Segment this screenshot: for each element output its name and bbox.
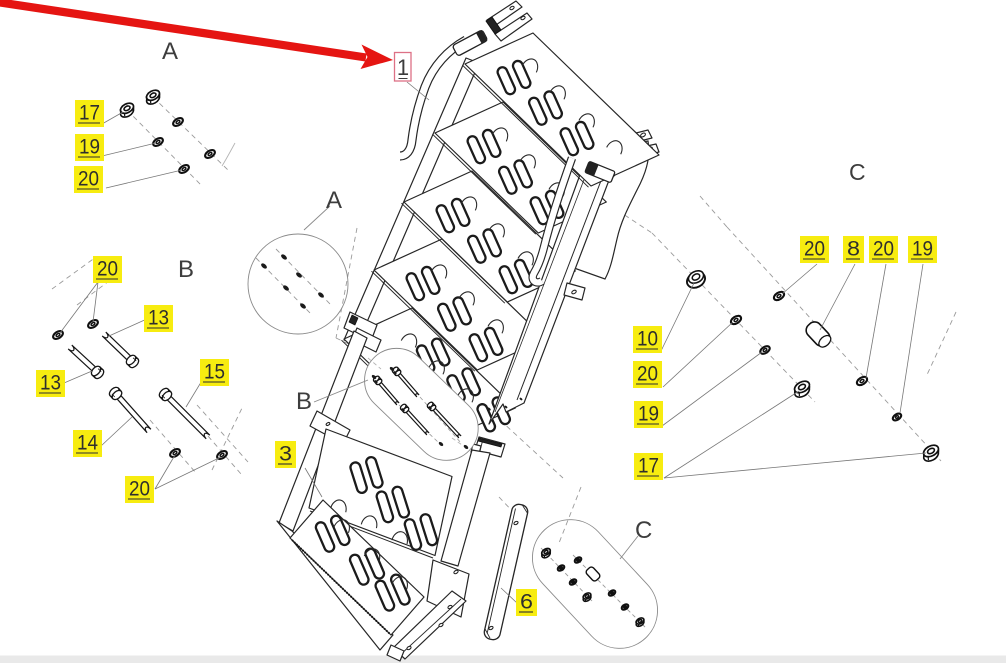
svg-text:19: 19	[79, 136, 100, 159]
svg-text:20: 20	[129, 478, 150, 501]
svg-text:20: 20	[804, 238, 825, 261]
svg-text:C: C	[635, 517, 652, 544]
svg-text:B: B	[178, 256, 194, 283]
svg-text:20: 20	[78, 168, 99, 191]
svg-text:B: B	[296, 388, 312, 415]
svg-text:15: 15	[204, 361, 225, 384]
svg-text:14: 14	[77, 432, 98, 455]
svg-text:20: 20	[97, 258, 118, 281]
svg-text:A: A	[162, 38, 178, 65]
svg-text:10: 10	[637, 328, 658, 351]
svg-text:17: 17	[79, 102, 100, 125]
svg-text:1: 1	[397, 55, 409, 80]
svg-text:A: A	[326, 187, 342, 214]
svg-text:19: 19	[912, 238, 933, 261]
svg-text:3: 3	[279, 443, 292, 466]
svg-text:19: 19	[638, 403, 659, 426]
svg-text:13: 13	[148, 307, 169, 330]
svg-text:6: 6	[520, 591, 533, 614]
svg-text:20: 20	[637, 363, 658, 386]
svg-text:20: 20	[873, 238, 894, 261]
svg-text:17: 17	[638, 455, 659, 478]
svg-text:13: 13	[40, 372, 61, 395]
svg-text:8: 8	[847, 238, 860, 261]
svg-text:C: C	[849, 159, 866, 185]
